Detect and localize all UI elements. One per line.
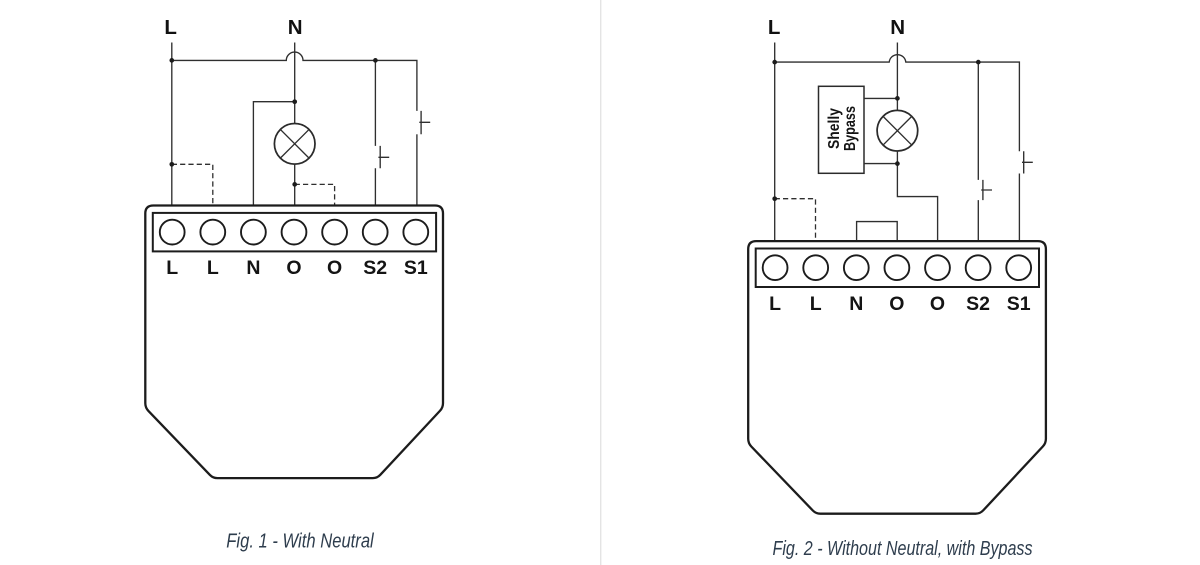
svg-text:L: L xyxy=(768,16,781,39)
svg-text:S2: S2 xyxy=(966,293,990,315)
svg-text:L: L xyxy=(207,257,219,279)
svg-text:O: O xyxy=(889,293,904,315)
svg-text:O: O xyxy=(327,257,342,279)
svg-text:Fig. 1 - With Neutral: Fig. 1 - With Neutral xyxy=(226,531,374,553)
svg-text:O: O xyxy=(286,257,301,279)
svg-text:N: N xyxy=(890,16,905,39)
svg-text:O: O xyxy=(930,293,945,315)
svg-text:L: L xyxy=(810,293,822,315)
svg-text:L: L xyxy=(164,16,177,39)
svg-text:Shelly: Shelly xyxy=(826,108,843,149)
svg-text:N: N xyxy=(288,16,303,39)
svg-text:S1: S1 xyxy=(404,257,428,279)
svg-text:L: L xyxy=(769,293,781,315)
svg-text:L: L xyxy=(166,257,178,279)
svg-text:Bypass: Bypass xyxy=(842,106,859,151)
svg-text:Fig. 2 - Without Neutral, with: Fig. 2 - Without Neutral, with Bypass xyxy=(773,538,1033,560)
svg-text:S2: S2 xyxy=(363,257,387,279)
svg-text:S1: S1 xyxy=(1007,293,1031,315)
svg-text:N: N xyxy=(246,257,260,279)
svg-text:N: N xyxy=(849,293,863,315)
